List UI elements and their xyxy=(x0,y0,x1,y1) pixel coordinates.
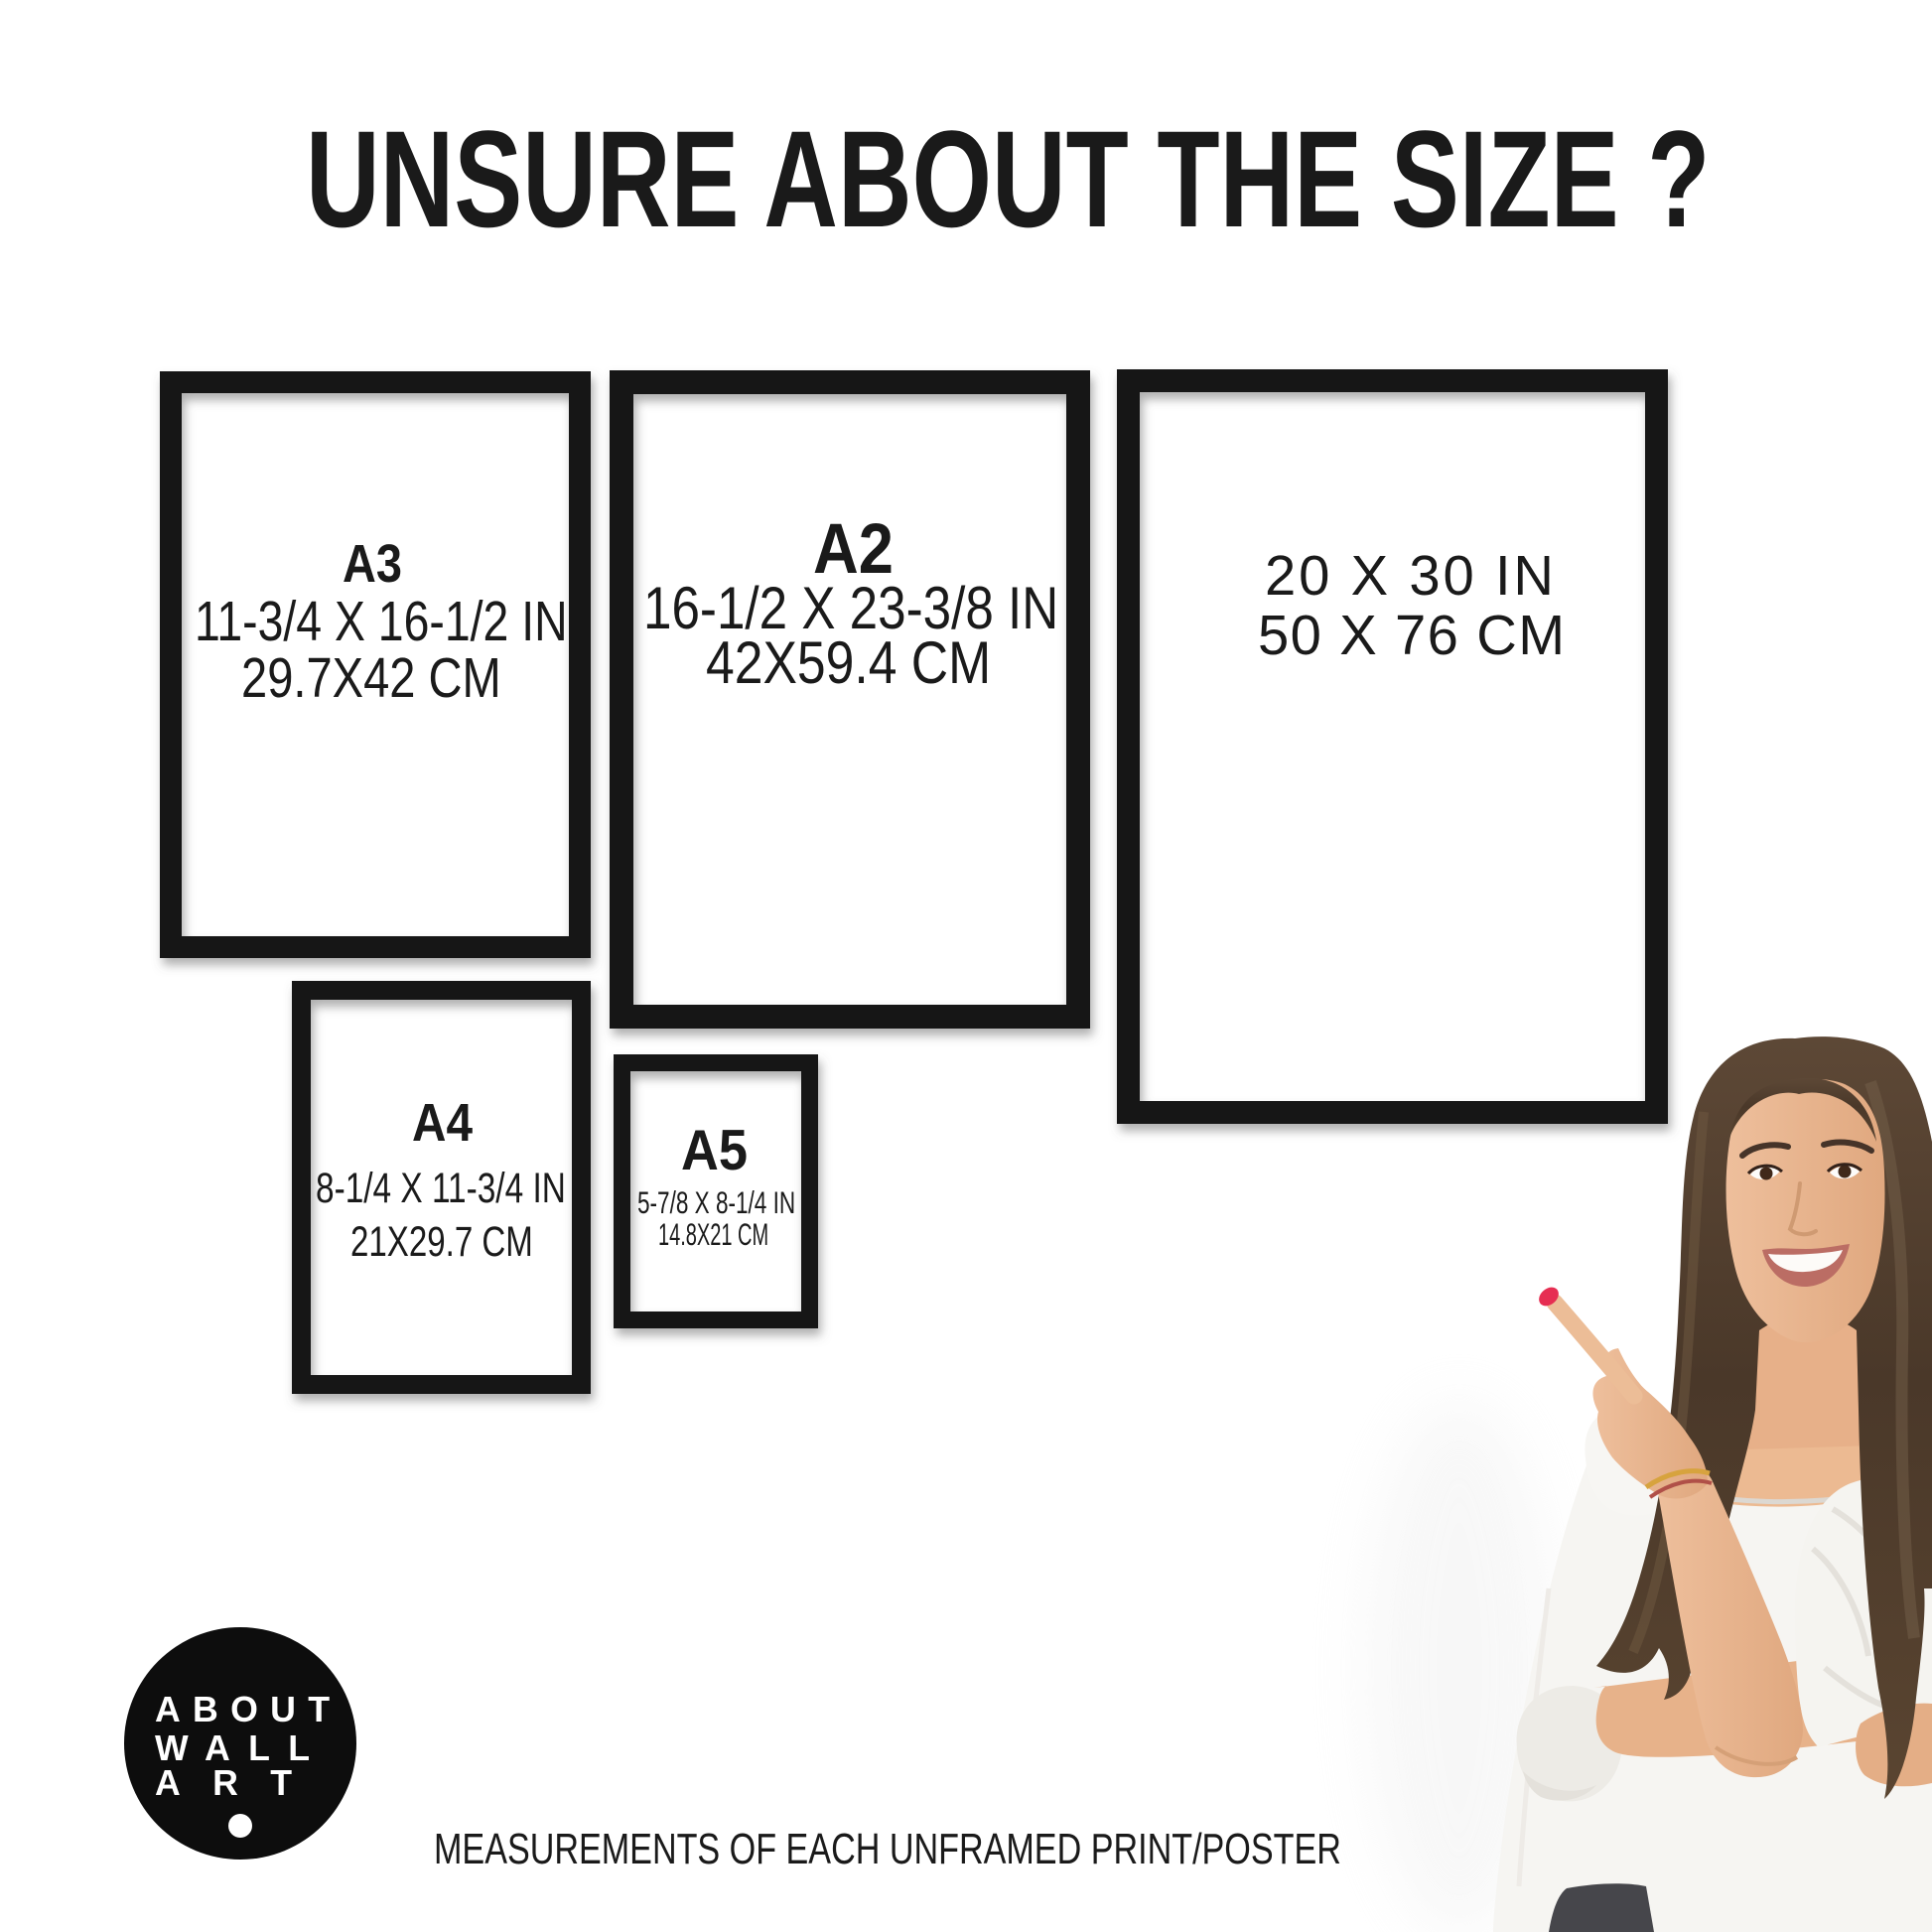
svg-text:50 X 76 CM: 50 X 76 CM xyxy=(1258,604,1565,666)
svg-text:ART: ART xyxy=(155,1763,292,1803)
svg-text:A4: A4 xyxy=(412,1092,473,1152)
svg-text:UNSURE ABOUT THE SIZE ?: UNSURE ABOUT THE SIZE ? xyxy=(306,101,1710,255)
svg-text:20 X 30 IN: 20 X 30 IN xyxy=(1265,544,1554,607)
svg-text:5-7/8 X 8-1/4 IN: 5-7/8 X 8-1/4 IN xyxy=(637,1184,795,1220)
svg-text:A3: A3 xyxy=(343,533,402,594)
svg-text:MEASUREMENTS OF EACH UNFRAMED: MEASUREMENTS OF EACH UNFRAMED PRINT/POST… xyxy=(434,1825,1341,1873)
svg-text:29.7X42 CM: 29.7X42 CM xyxy=(241,646,501,709)
svg-text:14.8X21 CM: 14.8X21 CM xyxy=(658,1216,768,1252)
svg-text:42X59.4 CM: 42X59.4 CM xyxy=(706,628,991,696)
svg-text:11-3/4 X 16-1/2 IN: 11-3/4 X 16-1/2 IN xyxy=(195,590,568,652)
svg-text:A5: A5 xyxy=(681,1118,748,1182)
svg-text:21X29.7 CM: 21X29.7 CM xyxy=(350,1219,533,1266)
svg-text:8-1/4 X 11-3/4 IN: 8-1/4 X 11-3/4 IN xyxy=(316,1165,566,1212)
